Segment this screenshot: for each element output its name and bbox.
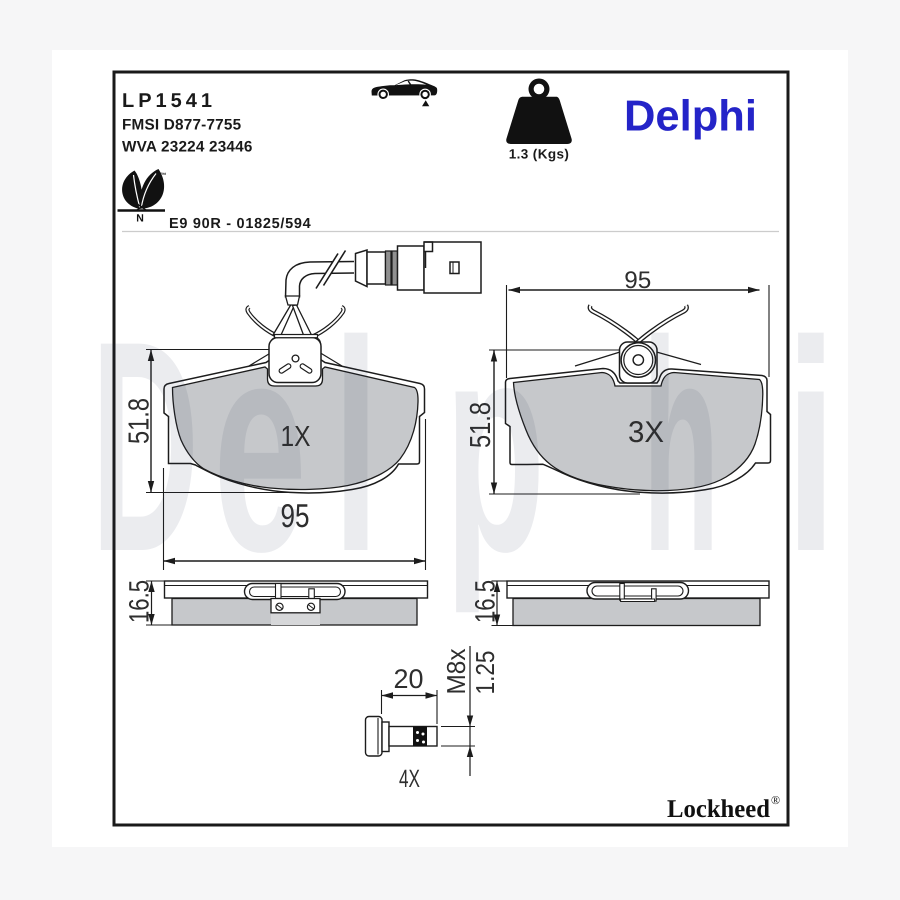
svg-text:N: N <box>136 213 144 225</box>
svg-text:1.25: 1.25 <box>470 651 500 695</box>
svg-text:LP1541: LP1541 <box>122 90 216 112</box>
svg-text:®: ® <box>771 793 780 807</box>
svg-text:20: 20 <box>394 664 424 694</box>
svg-text:M8x: M8x <box>441 649 471 695</box>
svg-text:WVA 23224 23446: WVA 23224 23446 <box>122 139 253 156</box>
svg-text:4X: 4X <box>399 765 420 793</box>
svg-text:h: h <box>643 278 720 614</box>
svg-text:Delphi: Delphi <box>624 93 757 141</box>
svg-text:Lockheed: Lockheed <box>667 794 770 823</box>
svg-text:D: D <box>91 278 199 614</box>
svg-text:FMSI D877-7755: FMSI D877-7755 <box>122 117 242 134</box>
svg-text:e: e <box>213 278 306 614</box>
svg-text:™: ™ <box>160 173 167 180</box>
svg-text:l: l <box>333 278 380 614</box>
svg-text:p: p <box>445 278 546 616</box>
svg-text:i: i <box>785 278 837 614</box>
svg-text:1.3 (Kgs): 1.3 (Kgs) <box>509 147 570 162</box>
svg-text:E9 90R - 01825/594: E9 90R - 01825/594 <box>169 216 311 232</box>
